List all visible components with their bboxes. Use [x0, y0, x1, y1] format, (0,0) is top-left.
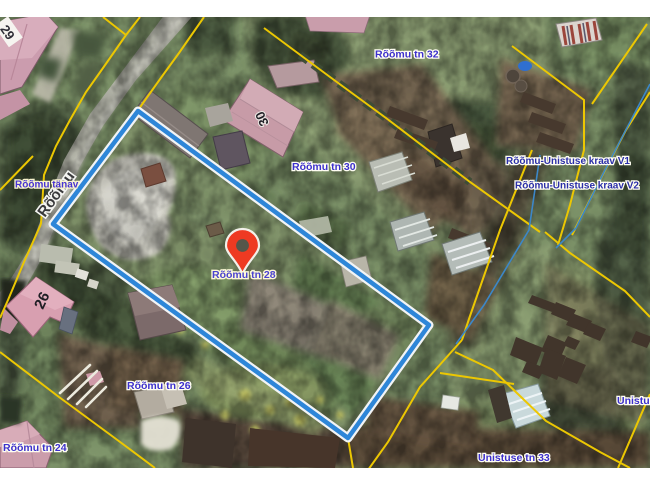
svg-text:Rõõmu-Unistuse kraav V1: Rõõmu-Unistuse kraav V1: [506, 156, 630, 167]
svg-text:Rõõmu tn 30: Rõõmu tn 30: [292, 161, 356, 173]
svg-text:Unistuse tn 33: Unistuse tn 33: [478, 452, 550, 464]
svg-text:Rõõmu tänav: Rõõmu tänav: [15, 180, 79, 191]
svg-text:Rõõmu tn 32: Rõõmu tn 32: [375, 49, 439, 61]
svg-text:Rõõmu-Unistuse kraav V2: Rõõmu-Unistuse kraav V2: [515, 181, 639, 192]
svg-text:Unistuse: Unistuse: [617, 395, 650, 407]
svg-text:Rõõmu tn 28: Rõõmu tn 28: [212, 269, 276, 281]
svg-text:Rõõmu tn 26: Rõõmu tn 26: [127, 380, 191, 392]
svg-text:Rõõmu tn 24: Rõõmu tn 24: [3, 442, 67, 454]
